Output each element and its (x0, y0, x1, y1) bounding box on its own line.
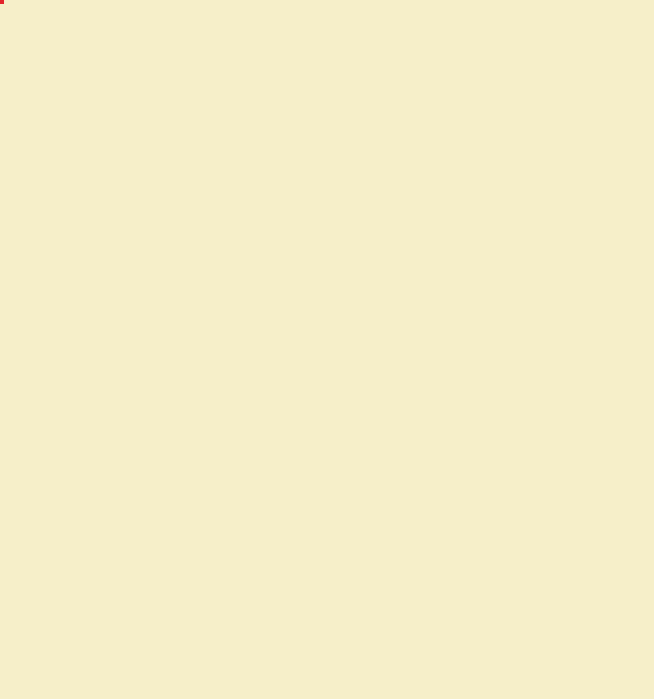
map-canvas[interactable] (0, 0, 654, 699)
target-property-label (0, 0, 4, 4)
map-labels-layer (0, 0, 654, 699)
